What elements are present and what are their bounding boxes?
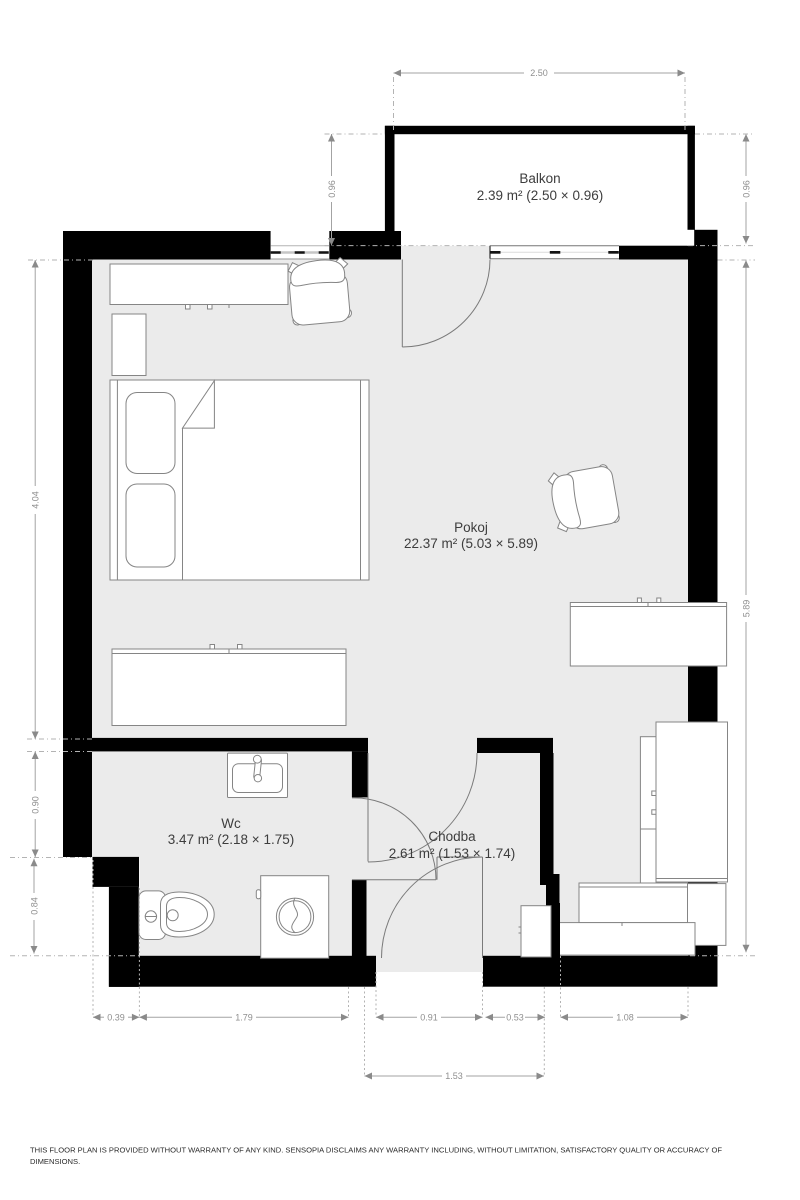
svg-text:Wc: Wc xyxy=(221,816,241,831)
svg-text:0.91: 0.91 xyxy=(420,1012,438,1022)
svg-text:2.61 m² (1.53 × 1.74): 2.61 m² (1.53 × 1.74) xyxy=(389,846,515,861)
svg-text:2.39 m² (2.50 × 0.96): 2.39 m² (2.50 × 0.96) xyxy=(477,188,603,203)
svg-text:22.37 m² (5.03 × 5.89): 22.37 m² (5.03 × 5.89) xyxy=(404,536,538,551)
svg-text:Chodba: Chodba xyxy=(428,829,476,844)
svg-text:0.90: 0.90 xyxy=(31,796,41,814)
svg-text:0.96: 0.96 xyxy=(741,180,751,198)
svg-text:0.84: 0.84 xyxy=(29,897,39,915)
svg-text:1.79: 1.79 xyxy=(235,1012,253,1022)
svg-text:0.39: 0.39 xyxy=(107,1012,125,1022)
svg-text:5.89: 5.89 xyxy=(741,600,751,618)
svg-text:THIS FLOOR PLAN IS PROVIDED WI: THIS FLOOR PLAN IS PROVIDED WITHOUT WARR… xyxy=(30,1146,722,1155)
svg-text:4.04: 4.04 xyxy=(31,491,41,509)
svg-text:2.50: 2.50 xyxy=(530,68,548,78)
svg-text:3.47 m² (2.18 × 1.75): 3.47 m² (2.18 × 1.75) xyxy=(168,832,294,847)
svg-text:1.53: 1.53 xyxy=(445,1071,463,1081)
svg-text:DIMENSIONS.: DIMENSIONS. xyxy=(30,1157,80,1166)
svg-text:Pokoj: Pokoj xyxy=(454,520,488,535)
svg-text:1.08: 1.08 xyxy=(616,1012,634,1022)
svg-text:0.53: 0.53 xyxy=(506,1012,524,1022)
svg-text:0.96: 0.96 xyxy=(327,180,337,198)
svg-text:Balkon: Balkon xyxy=(519,171,560,186)
